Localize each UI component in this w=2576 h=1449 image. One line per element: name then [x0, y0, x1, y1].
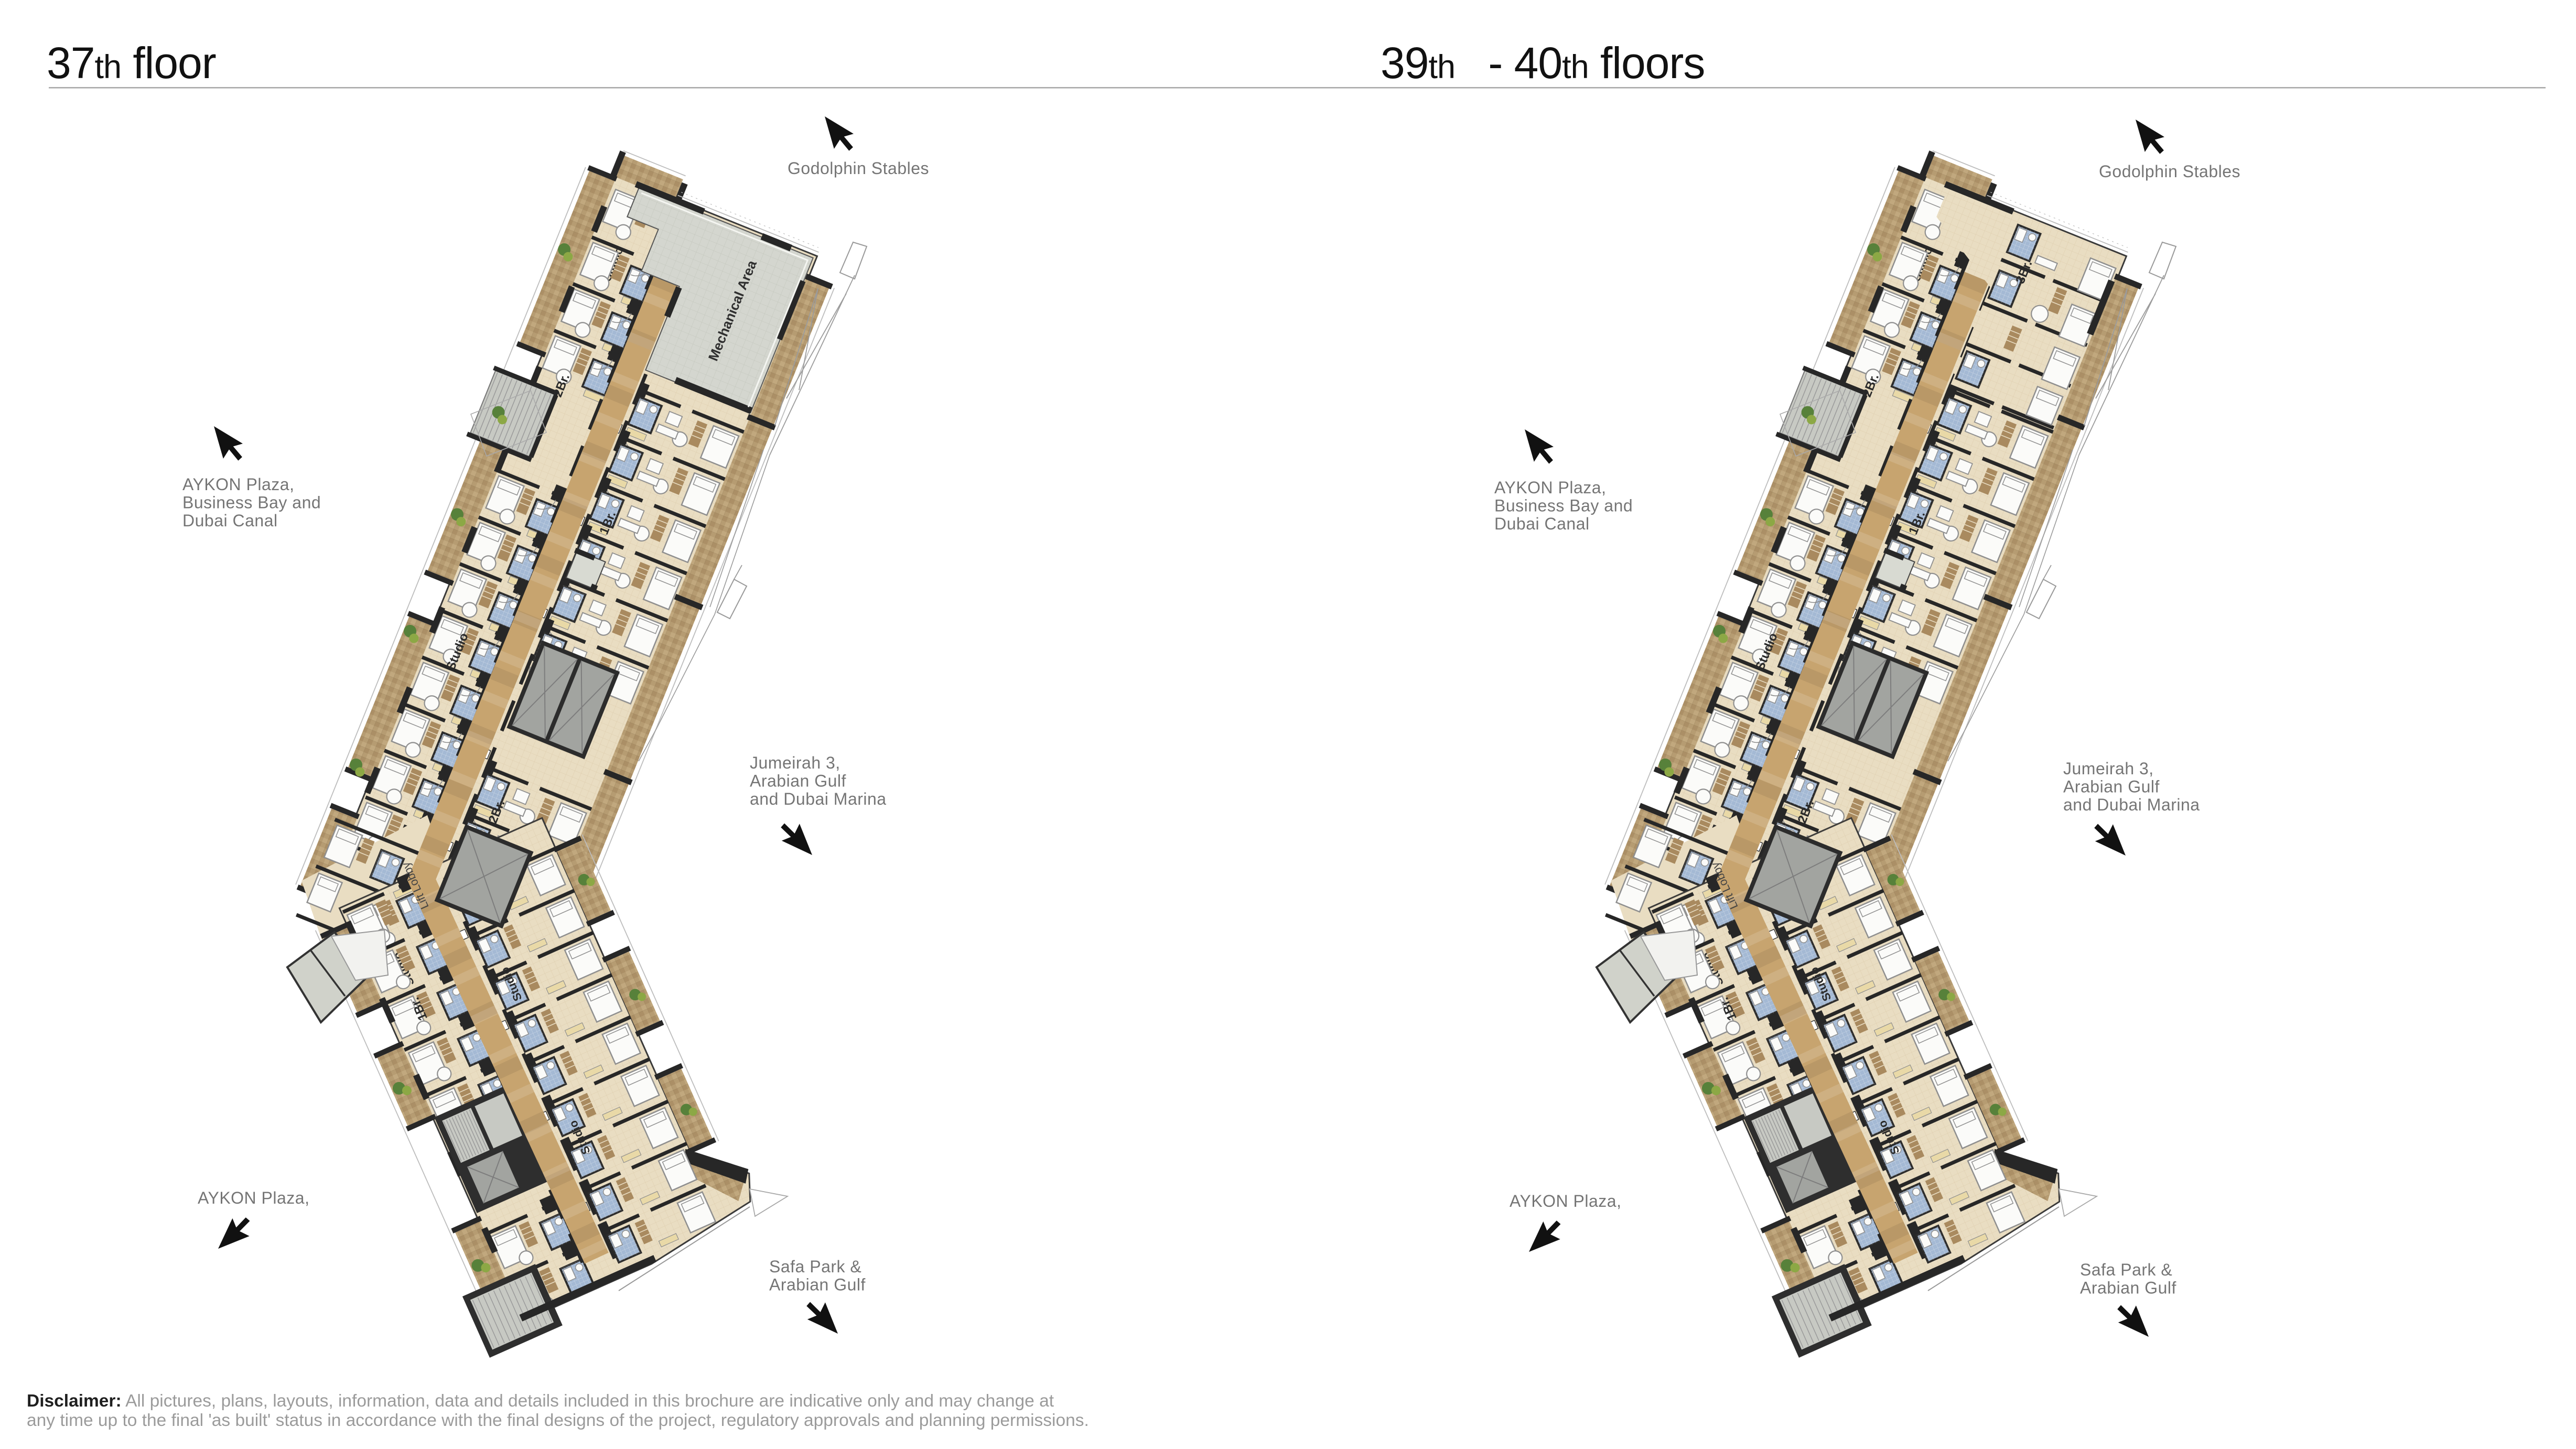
svg-text:Safa Park &Arabian Gulf: Safa Park &Arabian Gulf: [2080, 1260, 2176, 1297]
svg-text:AYKON Plaza,: AYKON Plaza,: [198, 1188, 309, 1207]
svg-text:Disclaimer: All pictures, plan: Disclaimer: All pictures, plans, layouts…: [27, 1391, 1054, 1411]
svg-text:Safa Park &Arabian Gulf: Safa Park &Arabian Gulf: [769, 1257, 866, 1294]
svg-text:37th floor: 37th floor: [47, 38, 216, 88]
svg-text:AYKON Plaza,: AYKON Plaza,: [1510, 1192, 1621, 1210]
svg-text:any time up to the final 'as b: any time up to the final 'as built' stat…: [27, 1411, 1089, 1430]
svg-text:Godolphin Stables: Godolphin Stables: [788, 159, 929, 178]
svg-text:Godolphin Stables: Godolphin Stables: [2099, 162, 2240, 181]
